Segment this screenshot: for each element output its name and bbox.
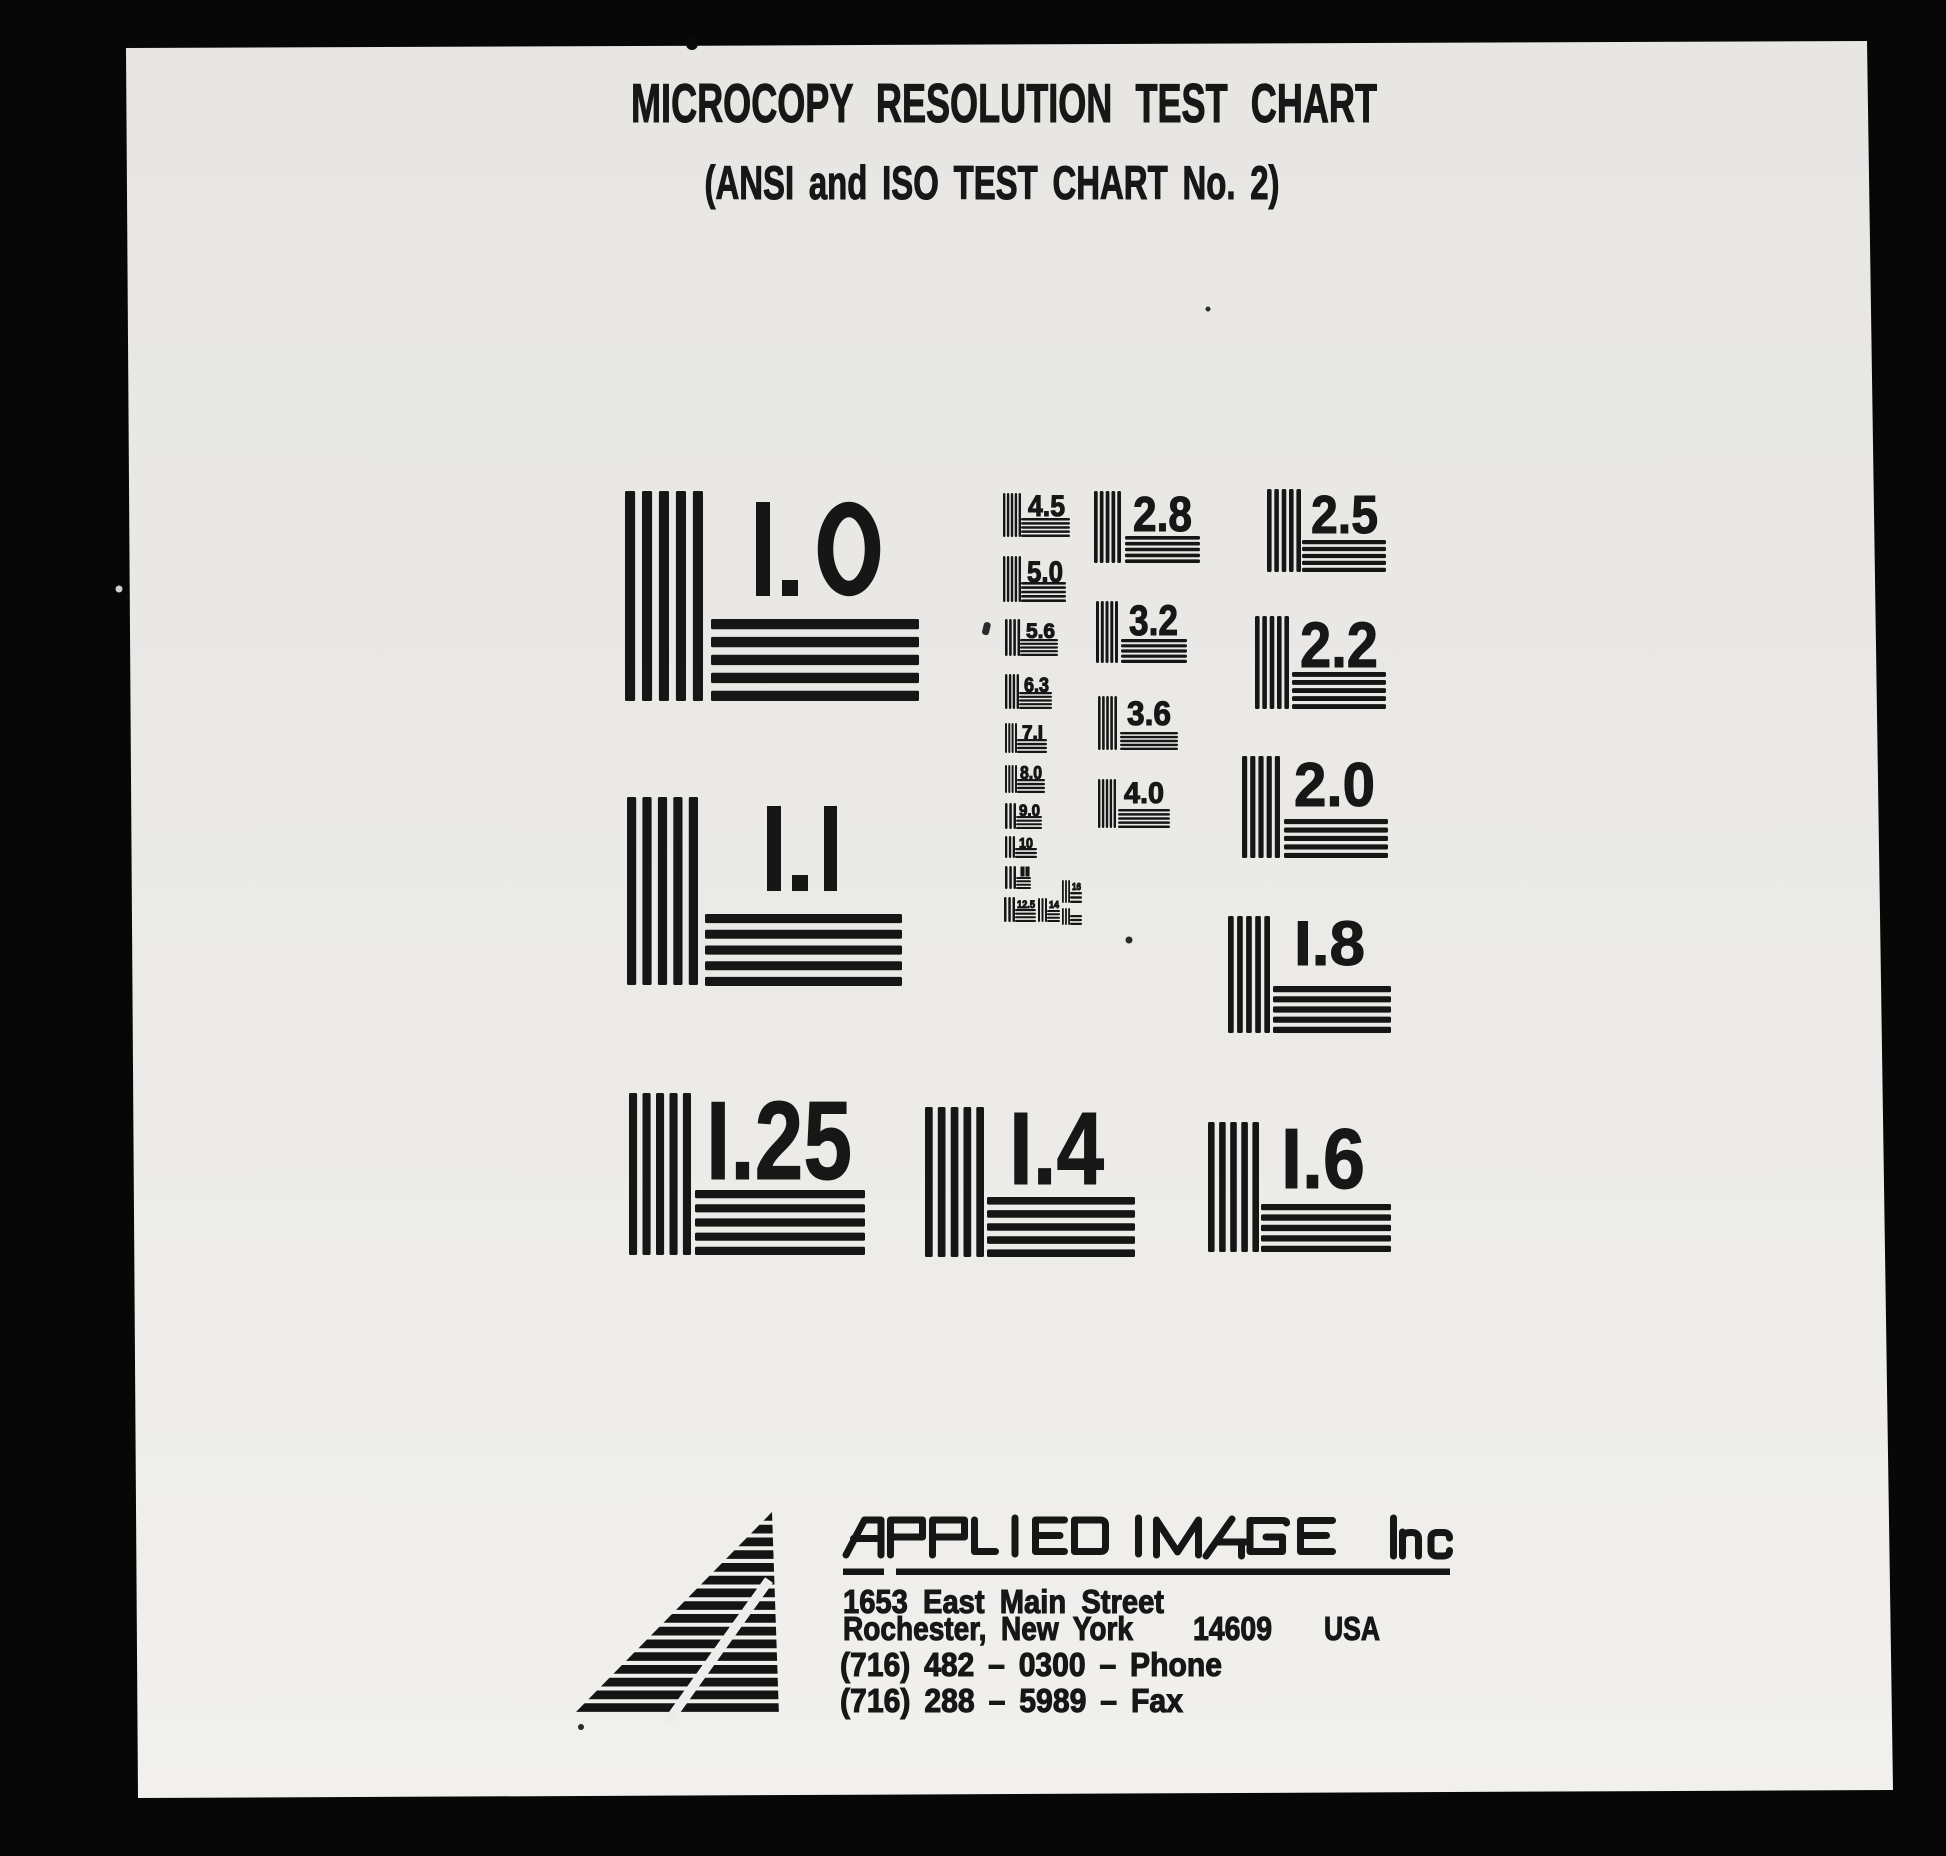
svg-text:I.4: I.4 xyxy=(1009,1091,1104,1206)
svg-text:MICROCOPY RESOLUTION TEST CHAR: MICROCOPY RESOLUTION TEST CHART xyxy=(631,72,1377,134)
svg-text:4.0: 4.0 xyxy=(1124,777,1164,810)
svg-text:9.0: 9.0 xyxy=(1019,801,1040,820)
svg-text:2.0: 2.0 xyxy=(1294,751,1375,820)
svg-text:2.2: 2.2 xyxy=(1300,609,1378,681)
svg-text:2.8: 2.8 xyxy=(1133,488,1192,542)
svg-text:I.6: I.6 xyxy=(1281,1112,1365,1207)
svg-text:16: 16 xyxy=(1072,882,1081,893)
svg-text:5.6: 5.6 xyxy=(1026,620,1055,643)
svg-text:6.3: 6.3 xyxy=(1024,674,1049,697)
svg-text:12.5: 12.5 xyxy=(1017,899,1035,911)
svg-text:II: II xyxy=(1020,864,1030,879)
svg-text:3.2: 3.2 xyxy=(1129,597,1178,645)
svg-text:4.5: 4.5 xyxy=(1028,490,1065,523)
svg-text:7.I: 7.I xyxy=(1022,723,1043,744)
svg-text:8.0: 8.0 xyxy=(1020,763,1042,783)
svg-text:3.6: 3.6 xyxy=(1127,695,1171,733)
svg-text:I.25: I.25 xyxy=(706,1079,852,1203)
svg-text:Rochester, New York: Rochester, New York xyxy=(843,1610,1134,1647)
svg-text:5.0: 5.0 xyxy=(1027,556,1063,589)
svg-text:10: 10 xyxy=(1019,835,1033,852)
svg-text:14609: 14609 xyxy=(1193,1610,1272,1647)
svg-text:I.8: I.8 xyxy=(1294,909,1365,979)
svg-text:(716) 288 – 5989 – Fax: (716) 288 – 5989 – Fax xyxy=(840,1682,1184,1719)
svg-text:14: 14 xyxy=(1049,900,1059,911)
svg-text:2.5: 2.5 xyxy=(1311,485,1378,545)
svg-text:(ANSI and ISO TEST CHART No. 2: (ANSI and ISO TEST CHART No. 2) xyxy=(705,156,1280,209)
svg-text:USA: USA xyxy=(1324,1610,1380,1647)
svg-text:(716) 482 – 0300 – Phone: (716) 482 – 0300 – Phone xyxy=(840,1646,1222,1683)
